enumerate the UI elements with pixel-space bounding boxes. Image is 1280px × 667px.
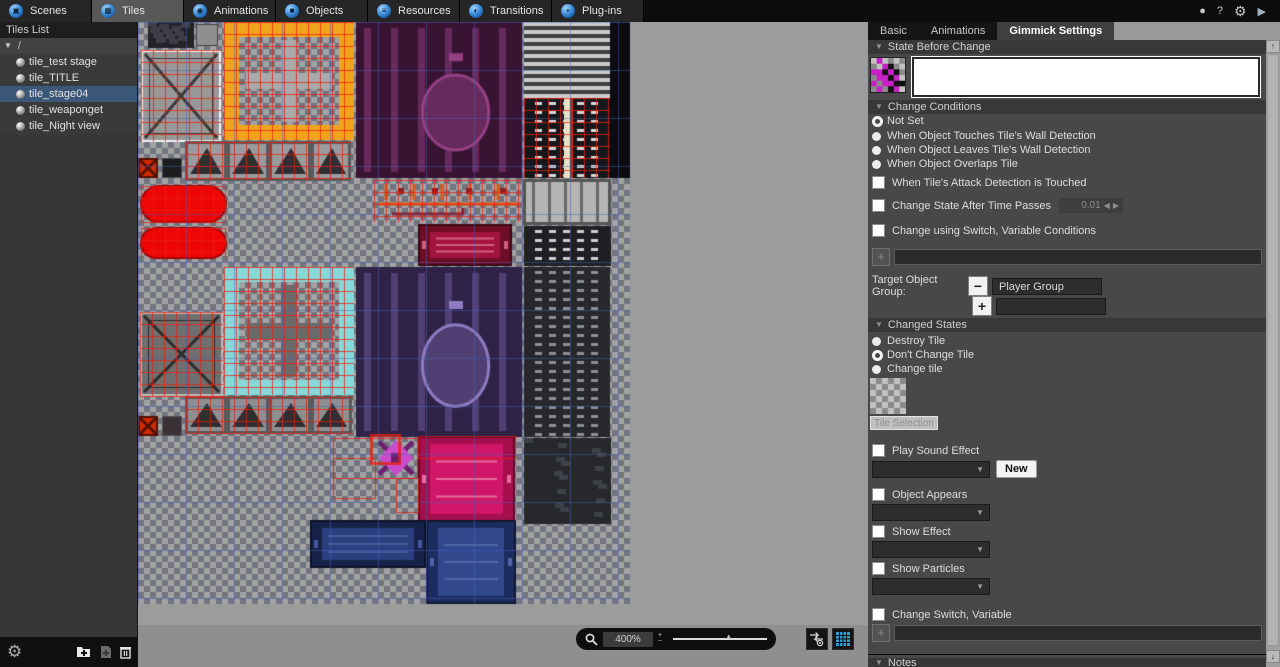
checkbox-attack-detection[interactable]: When Tile's Attack Detection is Touched	[872, 176, 1087, 189]
checkbox-icon[interactable]	[872, 444, 885, 457]
scenes-icon: ▣	[9, 4, 23, 18]
run-icon[interactable]: ▶	[1258, 5, 1266, 18]
add-group-button[interactable]: +	[972, 296, 992, 316]
tab-resources[interactable]: ≡Resources	[368, 0, 460, 22]
spinner-right-icon[interactable]: ▶	[1113, 201, 1119, 210]
tab-label: Animations	[214, 5, 268, 17]
new-sound-button[interactable]: New	[996, 460, 1037, 478]
checkbox-label: Change Switch, Variable	[892, 609, 1012, 621]
settings-icon[interactable]: ⚙	[1234, 3, 1247, 20]
checkbox-label: Object Appears	[892, 489, 967, 501]
checkbox-icon[interactable]	[872, 199, 885, 212]
transitions-icon: ◐	[469, 4, 483, 18]
objects-icon: ■	[285, 4, 299, 18]
divider	[868, 654, 1266, 655]
display-settings-icon	[809, 631, 825, 647]
radio-icon[interactable]	[872, 160, 881, 169]
add-condition-button[interactable]: +	[872, 248, 890, 266]
checkbox-show-particles[interactable]: Show Particles	[872, 562, 965, 575]
tile-selection-button[interactable]: Tile Selection	[870, 416, 938, 430]
canvas-toolbar: 400% +− ▲	[138, 625, 868, 667]
tab-label: Objects	[306, 5, 343, 17]
checkbox-icon[interactable]	[872, 525, 885, 538]
zoom-slider[interactable]: ▲	[673, 638, 767, 640]
remove-group-button[interactable]: −	[968, 276, 988, 296]
zoom-slider-handle[interactable]: ▲	[725, 632, 733, 641]
animations-icon: ◉	[193, 4, 207, 18]
item-label: tile_test stage	[29, 54, 97, 70]
object-dropdown[interactable]: ▼	[872, 504, 990, 521]
radio-label: Destroy Tile	[887, 335, 945, 347]
sidebar-item-tile-test-stage[interactable]: tile_test stage	[0, 54, 137, 70]
checkbox-icon[interactable]	[872, 176, 885, 189]
section-state-before-change[interactable]: ▼State Before Change	[868, 40, 1266, 54]
tile-state-preview[interactable]	[870, 57, 906, 93]
radio-label: When Object Touches Tile's Wall Detectio…	[887, 130, 1096, 142]
checkbox-icon[interactable]	[872, 488, 885, 501]
collapse-icon[interactable]: ▼	[875, 318, 883, 332]
state-name-input[interactable]	[912, 57, 1260, 97]
chevron-down-icon: ▼	[976, 582, 984, 591]
time-spinner[interactable]: 0.01◀▶	[1059, 198, 1123, 213]
section-notes[interactable]: ▼Notes	[868, 658, 1266, 667]
checkbox-label: Change State After Time Passes	[892, 200, 1051, 212]
radio-label: Don't Change Tile	[887, 349, 974, 361]
tab-label: Resources	[398, 5, 451, 17]
radio-icon[interactable]	[872, 350, 883, 361]
checkbox-icon[interactable]	[872, 608, 885, 621]
condition-add-row: +	[872, 248, 1262, 266]
radio-icon[interactable]	[872, 116, 883, 127]
item-label: tile_stage04	[29, 86, 88, 102]
radio-destroy-tile[interactable]: Destroy Tile	[872, 335, 945, 347]
tab-label: Tiles	[122, 5, 145, 17]
sidebar-item-tile-title[interactable]: tile_TITLE	[0, 70, 137, 86]
switch-add-row: +	[872, 624, 1262, 642]
section-changed-states[interactable]: ▼Changed States	[868, 318, 1266, 332]
help-icon[interactable]: ?	[1217, 5, 1223, 17]
target-object-group-row: Target Object Group: − Player Group	[872, 274, 1102, 298]
tiles-list-sidebar: Tiles List ▼/ tile_test stage tile_TITLE…	[0, 22, 138, 667]
properties-panel: Basic Animations Gimmick Settings ▼State…	[868, 22, 1280, 667]
tile-icon	[16, 58, 25, 67]
radio-leaves-wall[interactable]: When Object Leaves Tile's Wall Detection	[872, 144, 1090, 156]
grid-toggle-button[interactable]	[832, 628, 854, 650]
tiles-list-title: Tiles List	[0, 22, 137, 38]
chevron-down-icon: ▼	[976, 545, 984, 554]
top-toolbar: ▣Scenes ▦Tiles ◉Animations ■Objects ≡Res…	[0, 0, 1280, 22]
tab-objects[interactable]: ■Objects	[276, 0, 368, 22]
radio-touches-wall[interactable]: When Object Touches Tile's Wall Detectio…	[872, 130, 1096, 142]
tab-basic[interactable]: Basic	[868, 22, 919, 40]
target-group-add-row: +	[972, 296, 1106, 316]
item-label: tile_weaponget	[29, 102, 103, 118]
add-switch-button[interactable]: +	[872, 624, 890, 642]
target-group-empty[interactable]	[996, 298, 1106, 315]
grid-icon	[835, 631, 851, 647]
gear-icon[interactable]: ⚙	[7, 642, 22, 662]
tile-icon	[16, 106, 25, 115]
checkbox-show-effect[interactable]: Show Effect	[872, 525, 951, 538]
radio-label: Not Set	[887, 115, 924, 127]
tileset-canvas[interactable]	[138, 22, 868, 625]
spinner-left-icon[interactable]: ◀	[1104, 201, 1110, 210]
condition-list[interactable]	[894, 249, 1262, 265]
tile-icon	[16, 74, 25, 83]
target-group-value[interactable]: Player Group	[992, 278, 1102, 295]
panel-tab-bar: Basic Animations Gimmick Settings	[868, 22, 1280, 40]
switch-list[interactable]	[894, 625, 1262, 641]
scrollbar-thumb[interactable]	[1267, 54, 1279, 646]
radio-icon[interactable]	[872, 337, 881, 346]
scroll-down-icon[interactable]: ↓	[1266, 650, 1280, 663]
section-title: Changed States	[888, 318, 967, 332]
radio-not-set[interactable]: Not Set	[872, 115, 924, 127]
collapse-icon[interactable]: ▼	[875, 100, 883, 114]
collapse-icon[interactable]: ▼	[875, 40, 883, 54]
target-group-label: Target Object Group:	[872, 274, 968, 298]
magnifier-icon	[585, 633, 598, 646]
item-label: tile_Night view	[29, 118, 100, 134]
section-title: State Before Change	[888, 40, 991, 54]
sidebar-item-tile-stage04[interactable]: tile_stage04	[0, 86, 137, 102]
tab-animations[interactable]: ◉Animations	[184, 0, 276, 22]
particles-dropdown[interactable]: ▼	[872, 578, 990, 595]
checkbox-change-switch[interactable]: Change Switch, Variable	[872, 608, 1012, 621]
radio-change-tile[interactable]: Change tile	[872, 363, 943, 375]
radio-icon[interactable]	[872, 146, 881, 155]
root-label: /	[18, 38, 21, 54]
change-tile-preview[interactable]	[870, 378, 906, 414]
tab-gimmick-settings[interactable]: Gimmick Settings	[997, 22, 1114, 40]
radio-label: When Object Leaves Tile's Wall Detection	[887, 144, 1090, 156]
tab-tiles[interactable]: ▦Tiles	[92, 0, 184, 22]
collapse-icon[interactable]: ▼	[875, 658, 883, 667]
tab-scenes[interactable]: ▣Scenes	[0, 0, 92, 22]
radio-label: When Object Overlaps Tile	[887, 158, 1018, 170]
zoom-decrease-button[interactable]: −	[658, 639, 662, 645]
radio-icon[interactable]	[872, 132, 881, 141]
tile-icon	[16, 122, 25, 131]
radio-overlaps-tile[interactable]: When Object Overlaps Tile	[872, 158, 1018, 170]
display-settings-button[interactable]	[806, 628, 828, 650]
section-title: Notes	[888, 658, 917, 667]
scroll-up-icon[interactable]: ↑	[1266, 40, 1280, 53]
effect-select-row: ▼	[872, 541, 990, 558]
sound-select-row: ▼New	[872, 460, 1037, 478]
tab-transitions[interactable]: ◐Transitions	[460, 0, 552, 22]
tab-label: Transitions	[490, 5, 543, 17]
checkbox-play-sound[interactable]: Play Sound Effect	[872, 444, 979, 457]
section-title: Change Conditions	[888, 100, 982, 114]
resources-icon: ≡	[377, 4, 391, 18]
tab-label: Plug-ins	[582, 5, 622, 17]
tab-plugins[interactable]: +Plug-ins	[552, 0, 644, 22]
checkbox-switch-conditions[interactable]: Change using Switch, Variable Conditions	[872, 224, 1096, 237]
checkbox-label: Change using Switch, Variable Conditions	[892, 225, 1096, 237]
tab-panel-animations[interactable]: Animations	[919, 22, 997, 40]
zoom-control: 400% +− ▲	[576, 628, 776, 650]
chevron-down-icon: ▼	[976, 508, 984, 517]
checkbox-object-appears[interactable]: Object Appears	[872, 488, 967, 501]
checkbox-label: Show Effect	[892, 526, 951, 538]
checkbox-label: Show Particles	[892, 563, 965, 575]
section-change-conditions[interactable]: ▼Change Conditions	[868, 100, 1266, 114]
trash-icon[interactable]	[119, 645, 132, 659]
checkbox-icon[interactable]	[872, 562, 885, 575]
sound-dropdown[interactable]: ▼	[872, 461, 990, 478]
object-select-row: ▼	[872, 504, 990, 521]
add-folder-icon[interactable]	[76, 645, 93, 659]
zoom-value[interactable]: 400%	[603, 632, 653, 647]
item-label: tile_TITLE	[29, 70, 79, 86]
status-icon[interactable]: ●	[1199, 5, 1206, 17]
sidebar-footer: ⚙	[0, 637, 138, 667]
app-window: ▣Scenes ▦Tiles ◉Animations ■Objects ≡Res…	[0, 0, 1280, 667]
radio-label: Change tile	[887, 363, 943, 375]
panel-scrollbar[interactable]: ↑ ↓	[1266, 40, 1280, 667]
checkbox-time-passes[interactable]: Change State After Time Passes 0.01◀▶	[872, 198, 1123, 213]
checkbox-label: Play Sound Effect	[892, 445, 979, 457]
sidebar-item-tile-night-view[interactable]: tile_Night view	[0, 118, 137, 134]
particles-select-row: ▼	[872, 578, 990, 595]
tiles-icon: ▦	[101, 4, 115, 18]
checkbox-label: When Tile's Attack Detection is Touched	[892, 177, 1087, 189]
radio-icon[interactable]	[872, 365, 881, 374]
add-file-icon[interactable]	[100, 645, 112, 659]
radio-dont-change-tile[interactable]: Don't Change Tile	[872, 349, 974, 361]
tile-icon	[16, 90, 25, 99]
plugins-icon: +	[561, 4, 575, 18]
checkbox-icon[interactable]	[872, 224, 885, 237]
tree-root[interactable]: ▼/	[0, 38, 137, 54]
sidebar-item-tile-weaponget[interactable]: tile_weaponget	[0, 102, 137, 118]
chevron-down-icon[interactable]: ▼	[4, 38, 12, 54]
effect-dropdown[interactable]: ▼	[872, 541, 990, 558]
chevron-down-icon: ▼	[976, 465, 984, 474]
tab-label: Scenes	[30, 5, 67, 17]
time-value: 0.01	[1081, 200, 1100, 211]
